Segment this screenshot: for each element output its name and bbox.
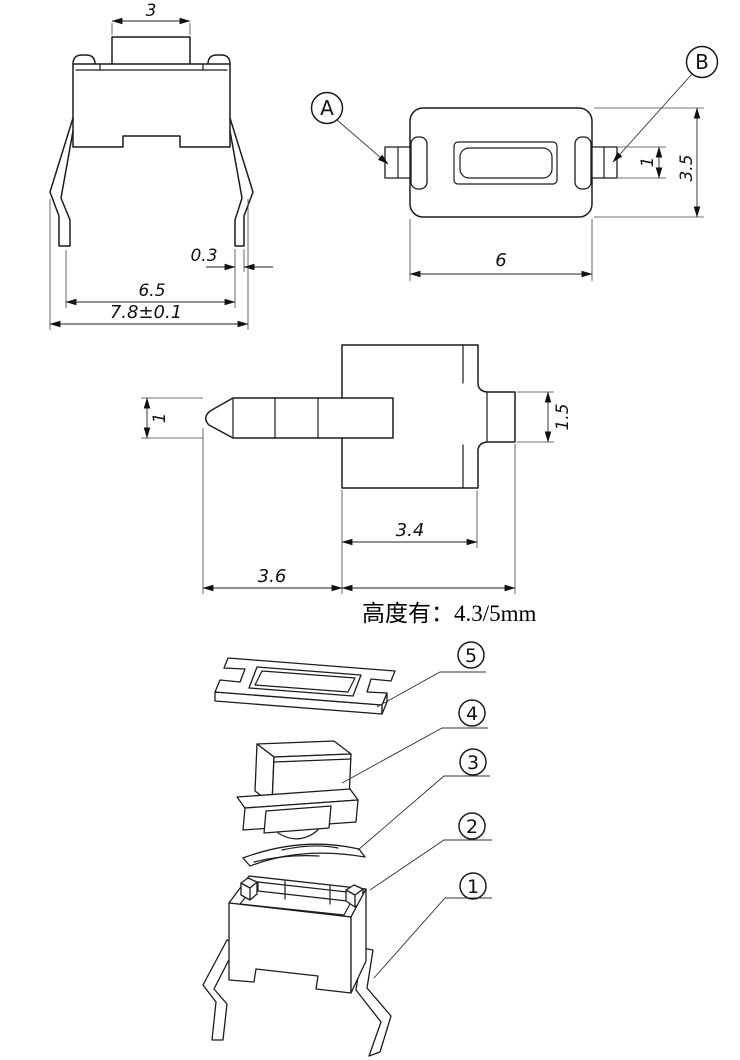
dim-body-depth: 3.5 xyxy=(677,154,697,181)
detail-label-b: B xyxy=(695,50,709,74)
leader-part1 xyxy=(374,898,492,978)
top-body-outline xyxy=(410,108,592,217)
dim-lead-span: 6.5 xyxy=(138,281,165,301)
part-3-dome xyxy=(243,844,365,866)
height-note: 高度有：4.3/5mm xyxy=(362,601,537,626)
dim-button-width: 3 xyxy=(146,1,157,21)
top-view: A B 1 3.5 6 xyxy=(312,47,718,282)
dim-side-body-width: 3.4 xyxy=(396,520,425,541)
leader-part5 xyxy=(377,672,486,707)
top-lead-a xyxy=(385,147,410,178)
callout-4-number: 4 xyxy=(466,703,478,725)
top-right-tab xyxy=(575,137,591,189)
side-body-steps xyxy=(463,345,487,488)
drawing-canvas: 3 0.3 6.5 7.8±0.1 xyxy=(0,0,740,1060)
callout-5-number: 5 xyxy=(465,645,477,667)
dim-pin-width: 1 xyxy=(150,413,170,424)
front-right-ear xyxy=(208,55,230,64)
front-body-outline xyxy=(73,64,230,147)
exploded-view: 5 4 3 2 1 xyxy=(203,642,492,1056)
technical-drawing: 3 0.3 6.5 7.8±0.1 xyxy=(0,0,740,1060)
dim3-extensions xyxy=(112,23,190,35)
callout-1-number: 1 xyxy=(467,876,479,898)
top-window-inner xyxy=(460,148,552,178)
front-button-outline xyxy=(112,37,190,64)
front-right-leg xyxy=(230,118,253,246)
dim36-extensions xyxy=(203,428,515,594)
top-left-tab xyxy=(411,137,427,189)
front-left-ear xyxy=(73,55,95,64)
dim-body-width: 6 xyxy=(495,250,506,271)
side-lead-pin xyxy=(206,398,393,438)
top-lead-b xyxy=(592,147,617,178)
part-5-cover xyxy=(215,658,395,714)
part-4-stem xyxy=(237,741,358,839)
callout-2-number: 2 xyxy=(466,816,478,838)
dim-lead-thickness: 0.3 xyxy=(190,246,217,266)
side-view: 1 1.5 3.4 3.6 高度有：4.3/5mm xyxy=(141,345,573,626)
dim-lead-length: 1 xyxy=(638,157,658,168)
leader-a xyxy=(337,120,388,164)
part-2-base xyxy=(229,876,366,993)
leader-b xyxy=(613,74,692,162)
front-cover-ticks xyxy=(100,64,203,70)
dim-boss-height: 1.5 xyxy=(553,403,573,430)
front-view: 3 0.3 6.5 7.8±0.1 xyxy=(50,1,273,330)
front-left-leg xyxy=(50,118,73,246)
callout-3-number: 3 xyxy=(467,752,479,774)
dim-pin-length: 3.6 xyxy=(258,566,287,587)
dim03-extensions xyxy=(235,249,244,272)
detail-label-a: A xyxy=(320,96,334,120)
dim-overall-width: 7.8±0.1 xyxy=(110,302,182,323)
